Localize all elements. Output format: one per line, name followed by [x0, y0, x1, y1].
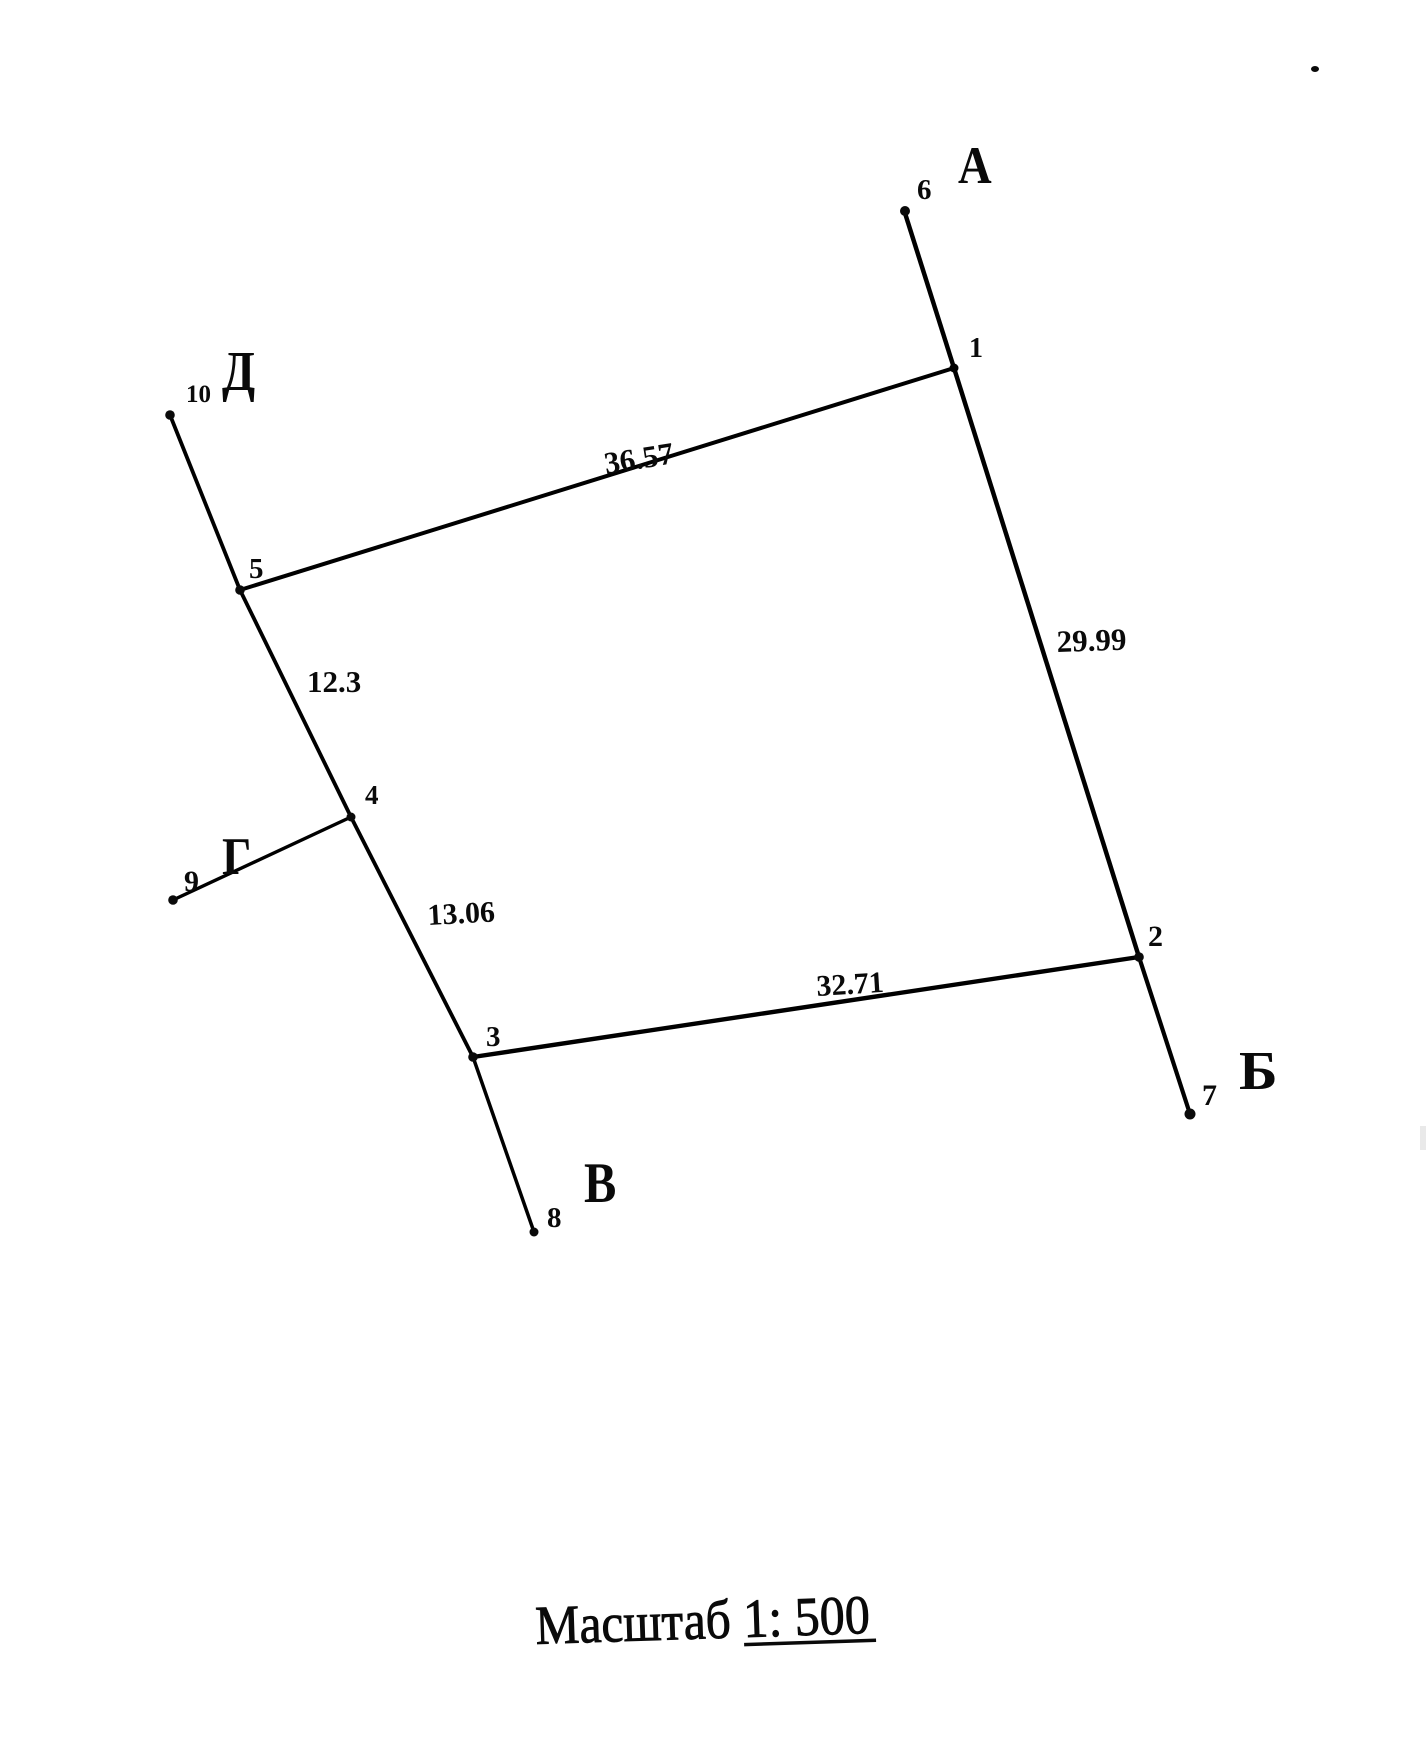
svg-text:3: 3: [486, 1021, 501, 1053]
svg-text:1: 1: [969, 333, 983, 364]
svg-text:6: 6: [917, 174, 932, 206]
svg-text:5: 5: [249, 553, 264, 585]
svg-text:8: 8: [547, 1202, 562, 1234]
svg-text:29.99: 29.99: [1056, 622, 1127, 659]
svg-text:Б: Б: [1239, 1041, 1278, 1101]
svg-text:7: 7: [1202, 1079, 1217, 1112]
svg-text:Д: Д: [222, 341, 255, 403]
svg-text:13.06: 13.06: [427, 896, 496, 932]
svg-text:32.71: 32.71: [815, 966, 884, 1003]
svg-text:12.3: 12.3: [307, 664, 361, 699]
svg-text:Г: Г: [222, 827, 251, 886]
svg-text:9: 9: [184, 865, 199, 898]
svg-text:10: 10: [186, 381, 211, 408]
svg-text:4: 4: [365, 780, 379, 810]
svg-text:В: В: [584, 1152, 616, 1214]
svg-text:2: 2: [1148, 920, 1163, 953]
svg-text:Масштаб: Масштаб: [534, 1589, 731, 1656]
svg-text:А: А: [958, 136, 992, 194]
